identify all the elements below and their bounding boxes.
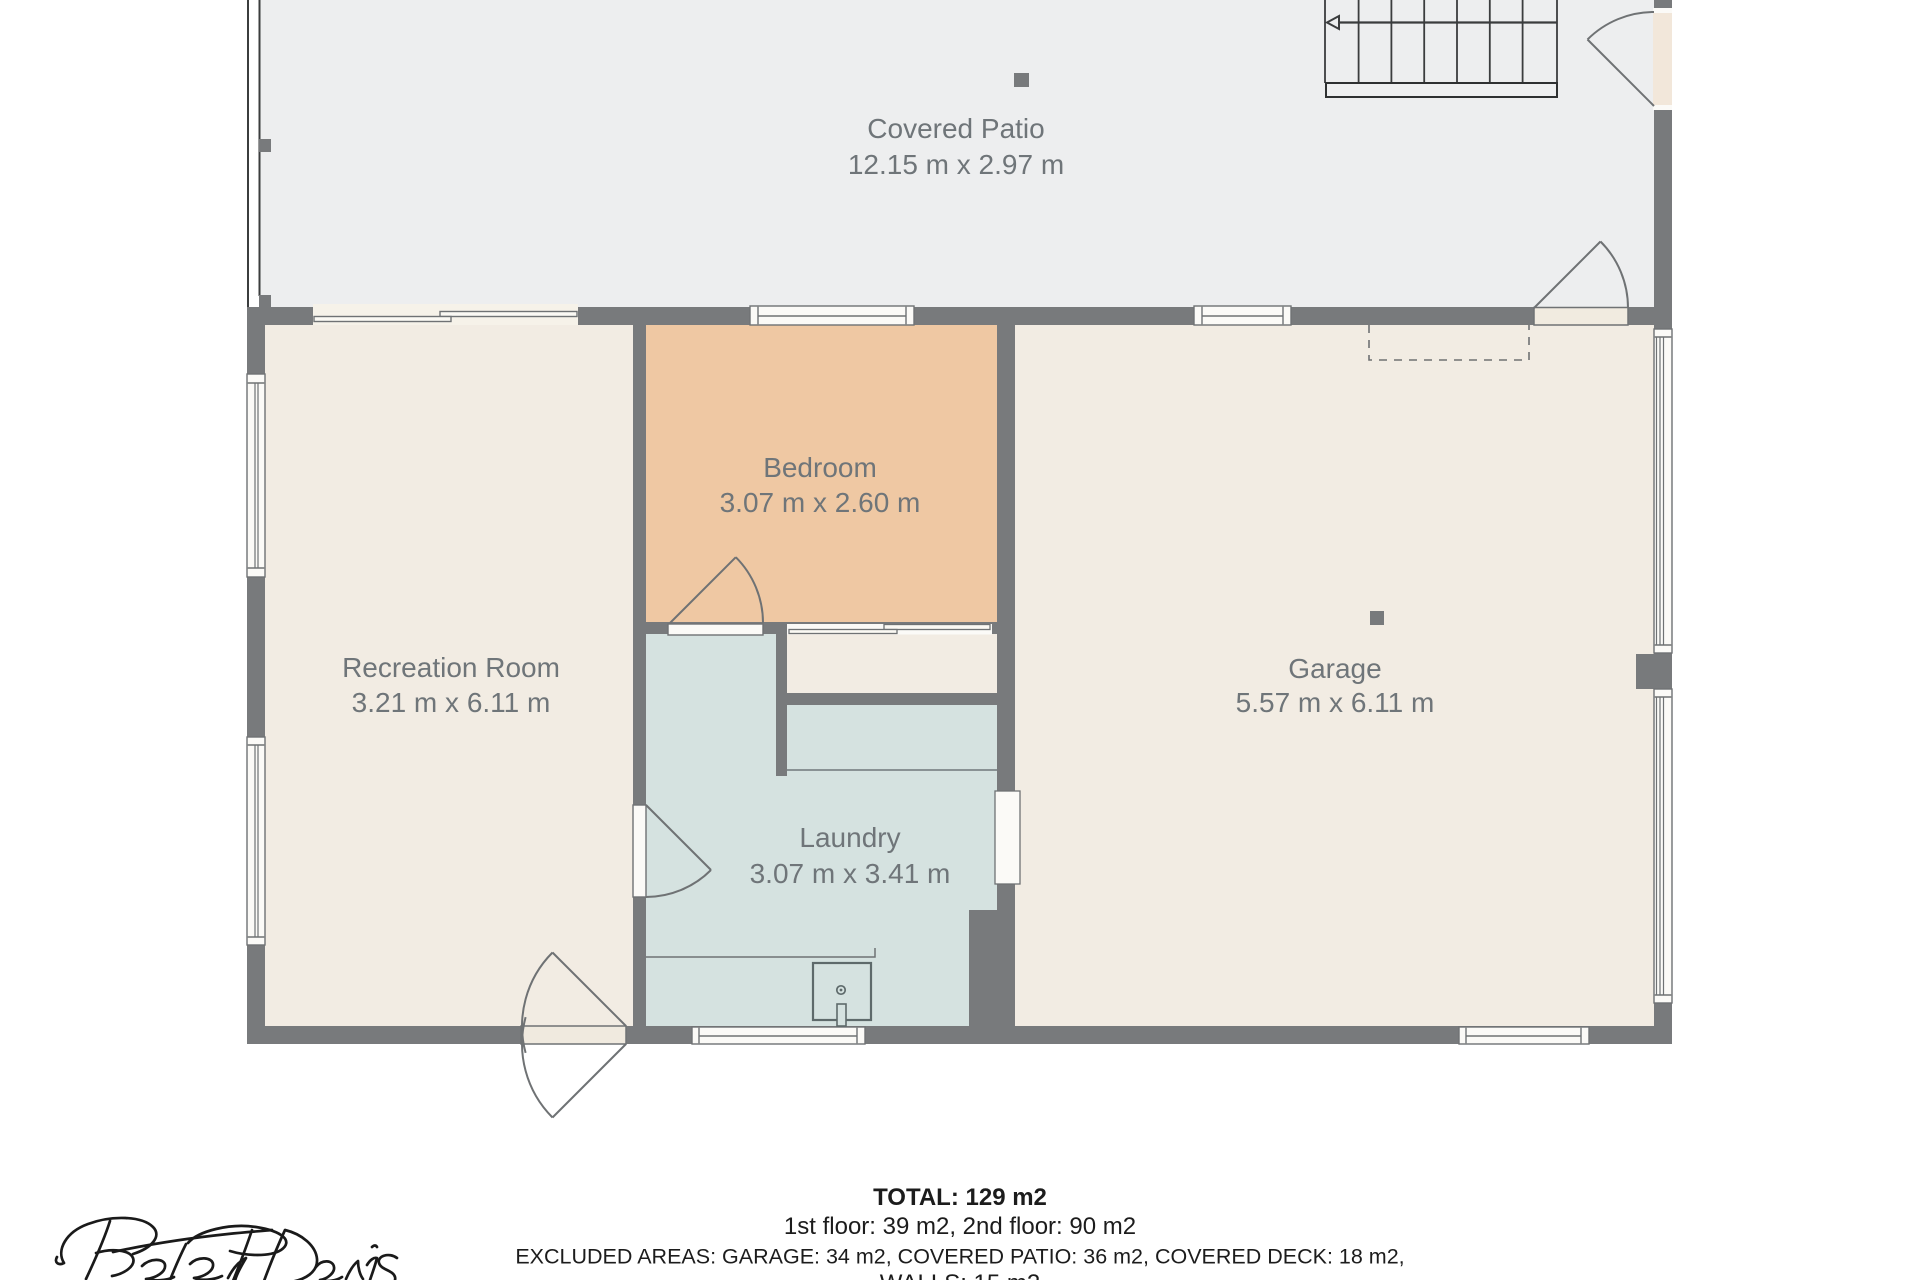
svg-text:Laundry: Laundry bbox=[799, 822, 900, 853]
svg-text:EXCLUDED AREAS: GARAGE: 34 m2,: EXCLUDED AREAS: GARAGE: 34 m2, COVERED P… bbox=[515, 1245, 1404, 1269]
svg-text:3.07 m x 3.41 m: 3.07 m x 3.41 m bbox=[750, 858, 951, 889]
svg-text:Covered Patio: Covered Patio bbox=[867, 113, 1044, 144]
svg-text:WALLS: 15 m2: WALLS: 15 m2 bbox=[880, 1270, 1041, 1280]
svg-text:3.21 m x 6.11 m: 3.21 m x 6.11 m bbox=[352, 687, 551, 718]
svg-text:1st floor: 39 m2, 2nd floor: 9: 1st floor: 39 m2, 2nd floor: 90 m2 bbox=[784, 1213, 1136, 1240]
svg-text:5.57 m x 6.11 m: 5.57 m x 6.11 m bbox=[1236, 687, 1435, 718]
svg-text:Bedroom: Bedroom bbox=[763, 452, 877, 483]
svg-text:3.07 m x 2.60 m: 3.07 m x 2.60 m bbox=[720, 487, 921, 518]
svg-text:Recreation Room: Recreation Room bbox=[342, 652, 560, 683]
svg-text:12.15 m x 2.97 m: 12.15 m x 2.97 m bbox=[848, 149, 1064, 180]
svg-text:TOTAL: 129 m2: TOTAL: 129 m2 bbox=[873, 1184, 1047, 1211]
svg-text:Garage: Garage bbox=[1288, 653, 1381, 684]
